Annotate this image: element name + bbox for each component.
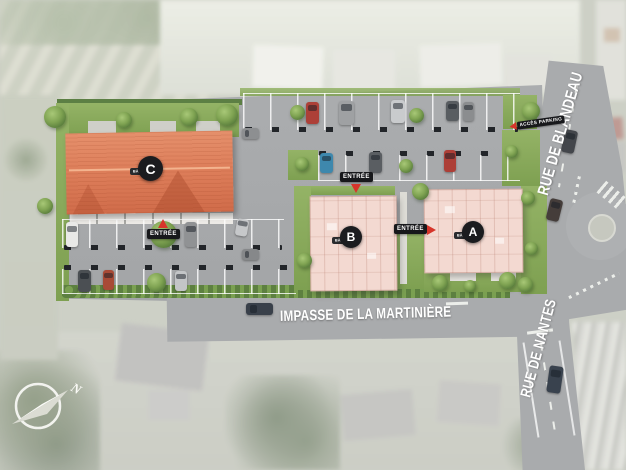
car xyxy=(246,303,273,315)
aerial-tree xyxy=(4,138,48,182)
car xyxy=(369,152,382,173)
car xyxy=(66,222,78,247)
car xyxy=(306,102,319,124)
roof-detail xyxy=(367,253,376,259)
aerial-roof xyxy=(340,389,416,441)
tree xyxy=(297,253,312,268)
car xyxy=(175,271,187,291)
entrance-arrow-down-icon xyxy=(351,184,361,193)
roundabout-island xyxy=(588,214,616,242)
aerial-building xyxy=(505,55,551,89)
tree xyxy=(147,273,166,292)
entrance-arrow-right-icon xyxy=(427,225,436,235)
tree xyxy=(216,104,238,126)
tree xyxy=(412,183,429,200)
car xyxy=(103,270,114,290)
compass: N xyxy=(4,372,94,434)
tree xyxy=(521,191,535,205)
parking-stall-tags xyxy=(245,127,518,132)
tree xyxy=(290,105,305,120)
lawn-patch xyxy=(294,186,311,290)
building-marker-a: A xyxy=(462,221,484,243)
car xyxy=(242,249,259,260)
tree xyxy=(295,157,309,171)
roof-detail xyxy=(445,206,455,213)
car xyxy=(320,153,333,173)
car xyxy=(185,222,197,247)
tree xyxy=(522,102,540,120)
parking-access-arrow-left-icon xyxy=(509,122,517,131)
car xyxy=(444,150,456,172)
car xyxy=(242,128,259,139)
roof-detail xyxy=(495,238,504,244)
tree xyxy=(180,108,198,126)
parking-row-north xyxy=(243,93,520,130)
aerial-building xyxy=(333,50,395,90)
aerial-roof xyxy=(604,28,620,42)
roof-detail xyxy=(327,223,337,230)
tree xyxy=(44,106,66,128)
tree xyxy=(464,280,476,292)
building-marker-c: C xyxy=(138,156,163,181)
aerial-trees xyxy=(0,95,58,360)
aerial-trees xyxy=(225,375,340,470)
tree xyxy=(37,198,53,214)
tree xyxy=(116,112,132,128)
tree xyxy=(399,159,413,173)
car xyxy=(446,101,459,121)
tree xyxy=(432,275,448,291)
compass-north-label: N xyxy=(68,379,85,397)
tree xyxy=(409,108,424,123)
car xyxy=(391,100,405,123)
entrance-label: ENTRÉE xyxy=(340,172,373,182)
car xyxy=(78,270,91,292)
building-marker-b: B xyxy=(340,226,362,248)
car xyxy=(463,102,474,121)
entrance-label: ENTRÉE xyxy=(394,224,427,234)
aerial-roof xyxy=(437,380,502,426)
entrance-arrow-up-icon xyxy=(158,219,168,228)
roof-hip xyxy=(72,181,105,215)
tree xyxy=(505,145,518,158)
entrance-label: ENTRÉE xyxy=(147,229,180,239)
car xyxy=(339,101,354,125)
site-plan-canvas: IMPASSE DE LA MARTINIÈRE RUE DE BLANDEAU… xyxy=(0,0,626,470)
aerial-roof xyxy=(148,390,190,420)
tree xyxy=(518,277,533,292)
aerial-building xyxy=(252,45,323,89)
aerial-building xyxy=(419,43,502,88)
tree xyxy=(499,272,516,289)
walkway xyxy=(400,192,407,284)
tree xyxy=(525,242,538,255)
